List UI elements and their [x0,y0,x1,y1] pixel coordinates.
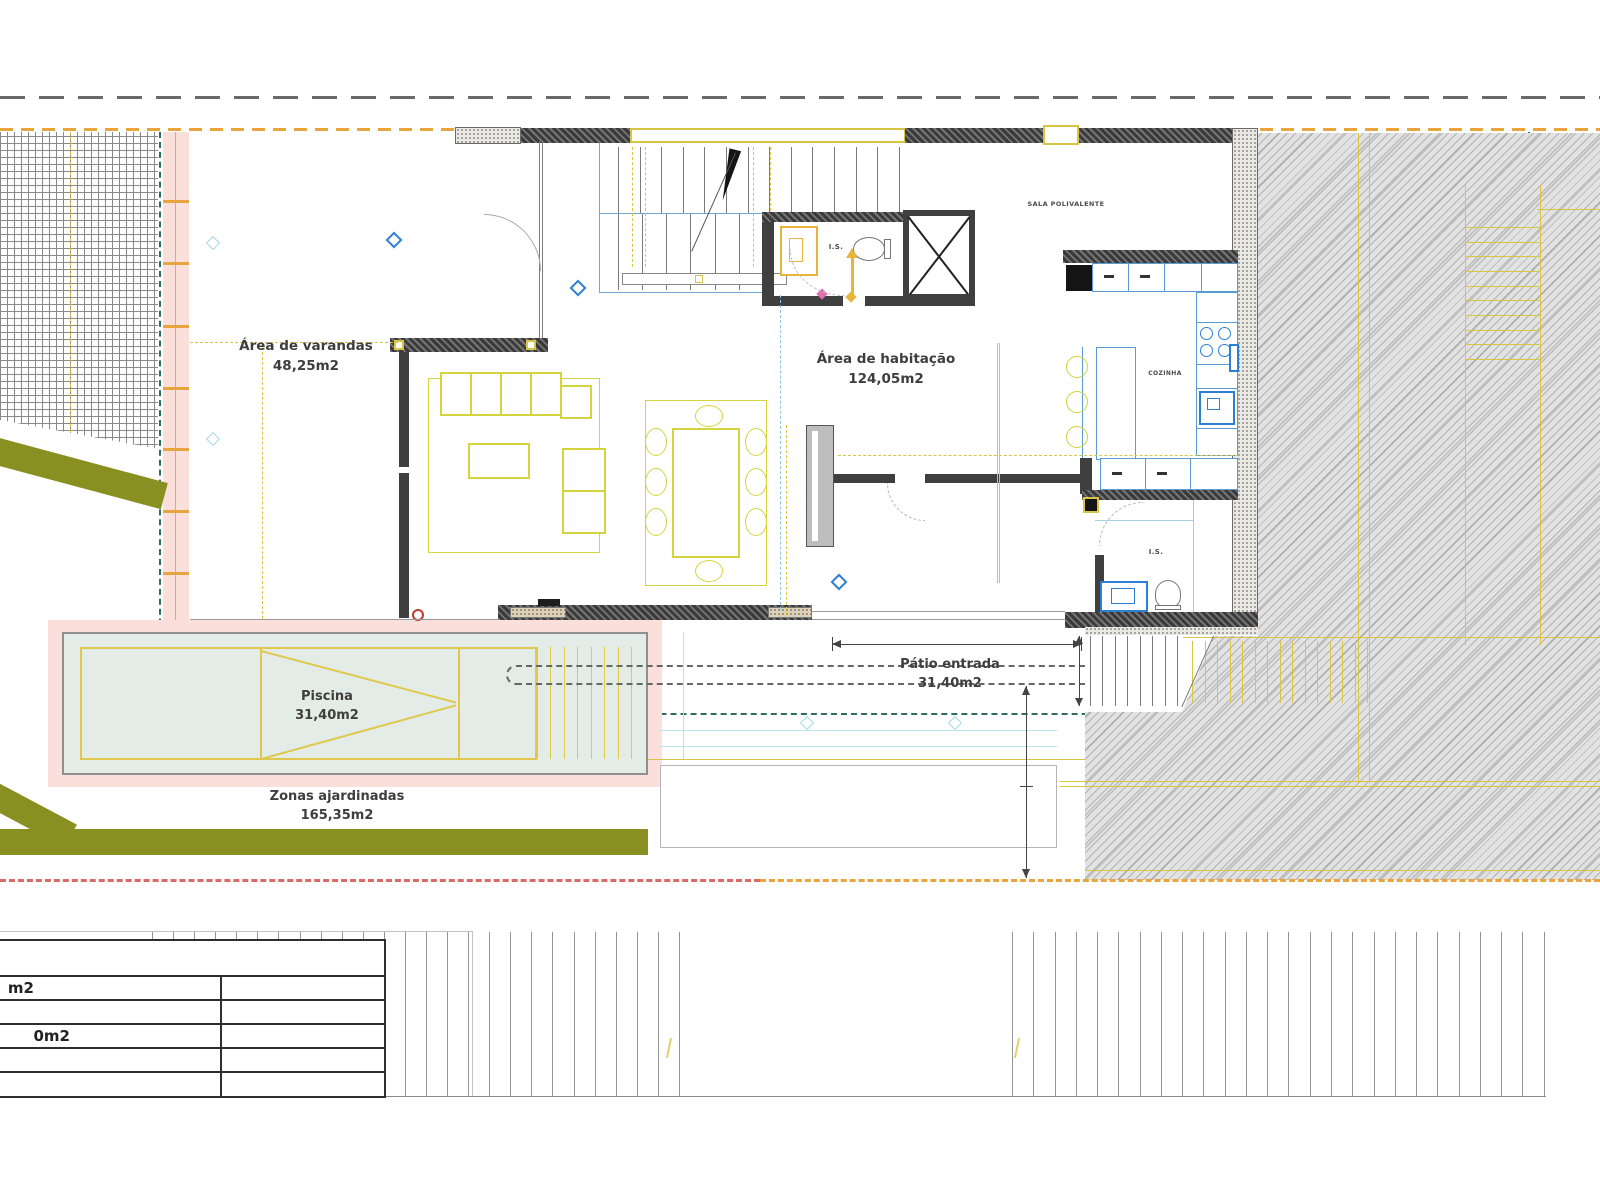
level-marker-blue [570,280,587,297]
terrain-yellow-line-a [1060,781,1600,782]
kitchen-cab-handle [1140,275,1150,278]
fence-right-group [1012,932,1545,1096]
label-habitacao: Área de habitação 124,05m2 [786,350,986,389]
glass-partition [997,343,1000,583]
label-varandas-name: Área de varandas [206,337,406,357]
ext-stair-dim-line [1079,636,1080,706]
label-habitacao-name: Área de habitação [786,350,986,370]
bath-toilet [1155,580,1181,608]
dim-h-tick-left [832,637,833,651]
garden-band-horizontal [0,829,648,855]
kitchen-lower-divider [1145,458,1146,490]
sofa-cushion-line [500,372,502,416]
level-marker-cyan [206,432,220,446]
kitchen-col-divider [1196,428,1238,429]
label-ajardinadas-value: 165,35m2 [237,807,437,826]
kitchen-sink-basin [1207,398,1220,410]
terrain-yellow-line-c [1085,870,1600,871]
cyan-dash-vertical [780,295,781,610]
wc-top-wall [762,212,912,222]
entrance-step-line-2 [812,619,1065,620]
label-piscina-value: 31,40m2 [227,707,427,726]
strip-tick [163,325,189,328]
bottom-wall-tan-2 [768,607,812,618]
site-boundary-top-dashed [0,96,1600,99]
label-piscina: Piscina 31,40m2 [227,688,427,726]
kitchen-wall-unit [1229,344,1239,372]
stair-yellow-dash-2 [645,147,646,267]
pool-divider-2 [458,647,460,760]
ext-stair-dim-arrow-top [1075,636,1083,644]
stair-yellow-dash-3 [753,147,754,267]
stove-burner [1200,344,1213,357]
kitchen-lower-divider [1190,458,1191,490]
exterior-stair-treads-right [1465,227,1541,360]
dining-chair [745,428,767,456]
wc-door-arc [790,250,844,296]
dining-chair [745,508,767,536]
walkway-rounded-cap [506,665,520,685]
dining-chair [645,468,667,496]
dining-chair [695,405,723,427]
living-left-wall [399,345,409,618]
strip-tick [163,448,189,451]
label-ajardinadas: Zonas ajardinadas 165,35m2 [237,788,437,826]
dim-v-tick-mid [1020,786,1033,787]
kitchen-black-column [1066,265,1092,291]
kitchen-lower-handle [1112,472,1122,475]
stove-burner [1218,327,1231,340]
bath-toilet-seat [1155,605,1181,610]
top-wall-left [521,128,631,143]
kitchen-label: COZINHA [1133,370,1197,377]
dining-chair [645,428,667,456]
dining-chair [695,560,723,582]
kitchen-cab-handle [1104,275,1114,278]
floor-plan-canvas: I.S. COZINHA [0,0,1600,1200]
ext-stair-dim-arrow-bottom [1075,698,1083,706]
bar-stool [1066,391,1088,413]
pool-deck-lines [537,647,632,759]
stair-yellow-dash-4 [770,147,771,211]
kitchen-right-column [1196,292,1238,456]
terrace-wall [390,338,548,352]
strip-tick [163,387,189,390]
wc-entry-arrow-head [846,248,858,258]
label-patio-name: Pátio entrada [850,656,1050,675]
top-wall-yellow-band [630,128,906,143]
terrace-wall-cap-right [526,340,536,350]
bar-stool [1066,356,1088,378]
bar-stool [1066,426,1088,448]
wc-entry-arrow-line [851,258,854,296]
dim-h-arrow-left [832,640,841,648]
retaining-wall-yellow-2 [1369,133,1370,783]
label-varandas-value: 48,25m2 [206,357,406,377]
kitchen-col-divider [1196,388,1238,389]
label-ajardinadas-name: Zonas ajardinadas [237,788,437,807]
sofa-cushion-line [470,372,472,416]
neighbour-grid-hatch [0,132,158,452]
legend-table: m2 0m2 [0,939,386,1098]
label-sala-polivalente: SALA POLIVALENTE [1008,200,1124,208]
sofa-corner [560,385,592,419]
dining-table [672,428,740,558]
kitchen-wall-band [1063,250,1238,263]
bath-door-arc [1099,502,1143,546]
bath-label: I.S. [1138,548,1174,556]
kitchen-cab-divider [1128,263,1129,292]
bath-shower-basin [1111,588,1135,604]
corridor-wall [828,474,1085,483]
legend-row [0,1049,384,1073]
dimension-horizontal [832,644,1082,645]
kitchen-island [1096,347,1136,460]
boundary-orange-dashed [760,879,1600,882]
top-wall-yellow-column [1043,125,1079,145]
terrace-bottom-line [190,619,500,620]
grid-hatch-yellow-line [70,132,71,432]
level-marker-blue [831,574,848,591]
ramp-top-line [1183,637,1600,638]
legend-row [0,1073,384,1096]
entrance-court [660,765,1057,848]
ext-stair-treads [1090,636,1178,706]
corridor-wall-stub [1080,458,1092,494]
label-piscina-name: Piscina [227,688,427,707]
stair-yellow-dash-1 [632,147,633,267]
stair-blue-left [599,143,600,293]
legend-row: m2 [0,977,384,1001]
bottom-wall-right [1065,612,1258,628]
patio-cyan-line-1 [660,730,1057,731]
label-patio: Pátio entrada 31,40m2 [850,656,1050,694]
strip-tick [163,572,189,575]
sofa-chaise-line [562,490,606,492]
yellow-dash-wardrobe [786,425,787,615]
pink-strip-left [163,132,189,621]
corridor-door-gap [895,474,925,483]
legend-row-text: m2 [8,979,34,997]
stair-upper-treads [618,147,900,213]
kitchen-cab-divider [1164,263,1165,292]
kitchen-lower-handle [1157,472,1167,475]
dimension-vertical [1026,686,1027,878]
bottom-wall-tan-1 [510,607,566,618]
level-marker-blue [386,232,403,249]
terrace-dash-v [262,342,263,619]
strip-tick [163,510,189,513]
bath-inner-line-v [1193,500,1194,612]
garden-band-diagonal [0,436,168,509]
dining-chair [745,468,767,496]
terrain-yellow-line-b [1060,786,1600,787]
top-wall-speckle-block [455,127,521,144]
pink-strip-wall-line [175,132,176,621]
dining-chair [645,508,667,536]
living-left-wall-notch [399,467,409,473]
level-marker-cyan [800,716,814,730]
wc-toilet-tank [884,239,891,259]
terrace-door-arc [484,214,541,271]
hall-wardrobe [806,425,834,547]
legend-row-text: 0m2 [33,1027,70,1045]
level-marker-cyan [206,236,220,250]
patio-yellow-edge [648,759,1085,760]
strip-tick [163,200,189,203]
wc-left-wall [762,222,774,298]
rug [468,443,530,479]
legend-row: 0m2 [0,1025,384,1049]
ramp-hatch-yellow [1192,641,1368,703]
pool-edge-cyan [683,632,684,760]
ext-stair-speckle [1085,627,1258,635]
legend-header-row [0,941,384,977]
bottom-wall-black-track [538,599,560,606]
kitchen-cab-divider [1201,263,1202,292]
corridor-door-arc [887,483,925,521]
stair-handrail-tick [695,275,703,283]
label-patio-value: 31,40m2 [850,675,1050,694]
glass-wall-terrace [539,141,543,343]
dim-v-arrow-bottom [1022,869,1030,878]
label-varandas: Área de varandas 48,25m2 [206,337,406,376]
label-habitacao-value: 124,05m2 [786,370,986,390]
patio-cyan-line-2 [660,746,1057,747]
legend-row [0,1001,384,1025]
boundary-red-dashed [0,879,760,882]
stair-blue-bottom [599,292,765,293]
entrance-step-line-1 [812,611,1065,612]
kitchen-col-divider [1196,322,1238,323]
terrain-yellow-line-top [1537,209,1600,210]
bath-black-column [1083,497,1099,513]
level-marker-cyan [948,716,962,730]
bath-top-wall [1082,490,1238,500]
yellow-dash-corridor [838,455,1238,456]
hall-wardrobe-stripe [812,431,818,541]
strip-tick [163,262,189,265]
stove-burner [1200,327,1213,340]
sofa-cushion-line [530,372,532,416]
